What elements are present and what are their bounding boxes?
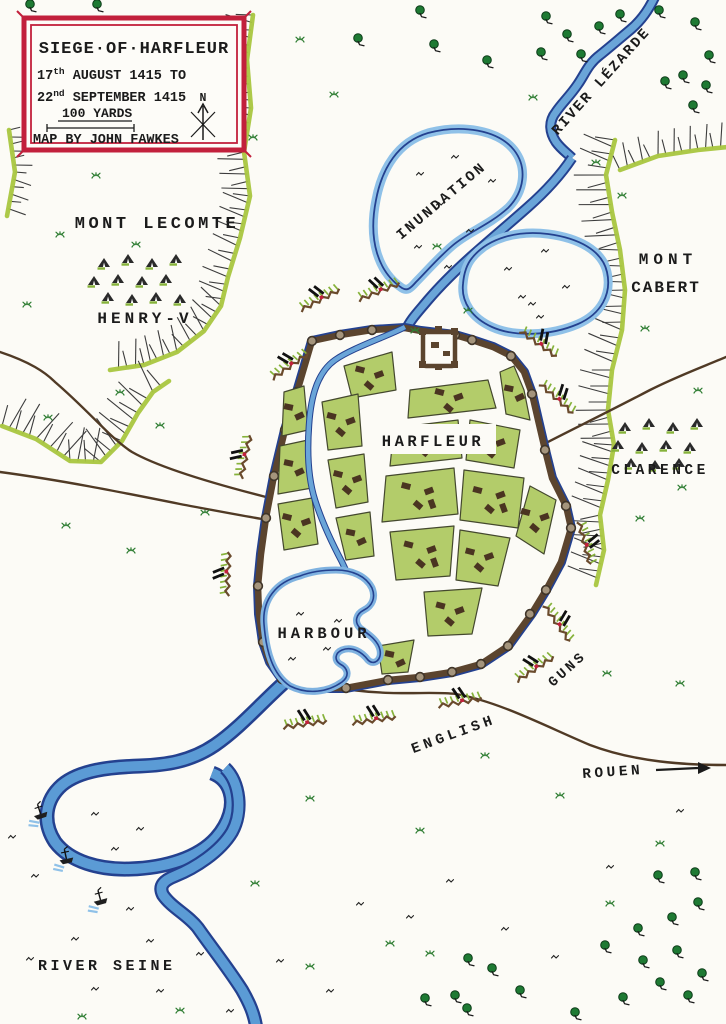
citadel bbox=[419, 326, 458, 370]
city-block bbox=[390, 526, 454, 580]
city-block bbox=[278, 498, 318, 550]
city-block bbox=[382, 468, 458, 522]
wall-tower-icon bbox=[541, 446, 550, 455]
wall-tower-icon bbox=[468, 336, 477, 345]
date2-rest: SEPTEMBER 1415 bbox=[65, 91, 187, 106]
siege-of-harfleur-map: MONT LECOMTE HENRY-V RIVER LÉZARDE INUND… bbox=[0, 0, 726, 1024]
siege-map-svg: MONT LECOMTE HENRY-V RIVER LÉZARDE INUND… bbox=[0, 0, 726, 1024]
map-credit: MAP BY JOHN FAWKES bbox=[33, 133, 179, 148]
city-block bbox=[282, 386, 308, 436]
compass-north-label: N bbox=[200, 92, 207, 105]
wall-tower-icon bbox=[507, 352, 516, 361]
wall-tower-icon bbox=[416, 673, 425, 682]
label-harbour: HARBOUR bbox=[277, 625, 370, 643]
date2-ordinal: nd bbox=[53, 88, 65, 99]
wall-tower-icon bbox=[308, 337, 317, 346]
wall-tower-icon bbox=[384, 676, 393, 685]
date1-number: 17 bbox=[37, 69, 53, 84]
wall-tower-icon bbox=[262, 514, 271, 523]
label-river-seine: RIVER SEINE bbox=[38, 958, 176, 975]
city-block bbox=[460, 470, 524, 528]
wall-tower-icon bbox=[542, 586, 551, 595]
label-mont-cabert-1: MONT bbox=[639, 251, 697, 269]
wall-tower-icon bbox=[254, 582, 263, 591]
label-mont-lecomte: MONT LECOMTE bbox=[75, 215, 239, 234]
wall-tower-icon bbox=[477, 660, 486, 669]
wall-tower-icon bbox=[526, 610, 535, 619]
wall-tower-icon bbox=[567, 524, 576, 533]
label-harfleur: HARFLEUR bbox=[382, 433, 484, 451]
wall-tower-icon bbox=[270, 472, 279, 481]
wall-tower-icon bbox=[336, 331, 345, 340]
label-clarence: CLARENCE bbox=[611, 463, 709, 479]
city-block bbox=[424, 588, 482, 636]
wall-tower-icon bbox=[528, 390, 537, 399]
label-henry-v: HENRY-V bbox=[97, 310, 192, 328]
wall-tower-icon bbox=[562, 502, 571, 511]
date1-rest: AUGUST 1415 TO bbox=[65, 69, 187, 84]
date2-number: 22 bbox=[37, 91, 53, 106]
wall-tower-icon bbox=[448, 668, 457, 677]
date1-ordinal: th bbox=[53, 66, 65, 77]
title-box: SIEGE·OF·HARFLEUR 17th AUGUST 1415 TO 22… bbox=[17, 11, 251, 157]
city-block bbox=[322, 394, 362, 450]
map-title: SIEGE·OF·HARFLEUR bbox=[39, 40, 229, 59]
label-mont-cabert-2: CABERT bbox=[631, 279, 701, 297]
scale-label: 100 YARDS bbox=[62, 106, 132, 121]
wall-tower-icon bbox=[368, 326, 377, 335]
wall-tower-icon bbox=[504, 642, 513, 651]
